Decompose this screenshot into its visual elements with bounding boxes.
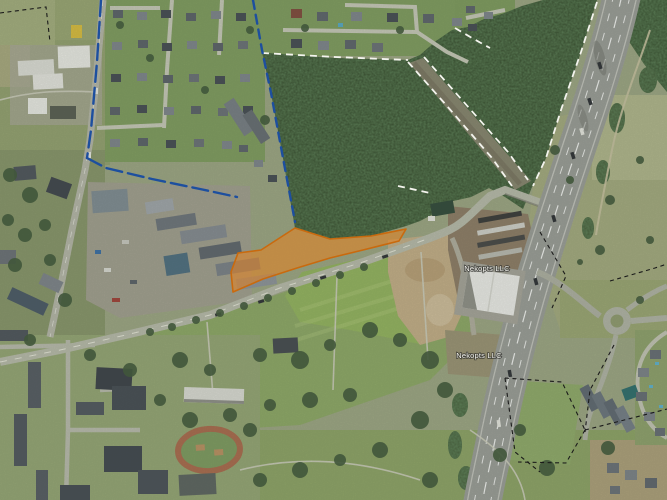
satellite-map-viewport[interactable]: Nekopts LLC Nekopts LLC bbox=[0, 0, 667, 500]
map-label: Nekopts LLC bbox=[456, 351, 502, 360]
satellite-map[interactable]: Nekopts LLC Nekopts LLC bbox=[0, 0, 667, 500]
map-label: Nekopts LLC bbox=[464, 264, 510, 273]
